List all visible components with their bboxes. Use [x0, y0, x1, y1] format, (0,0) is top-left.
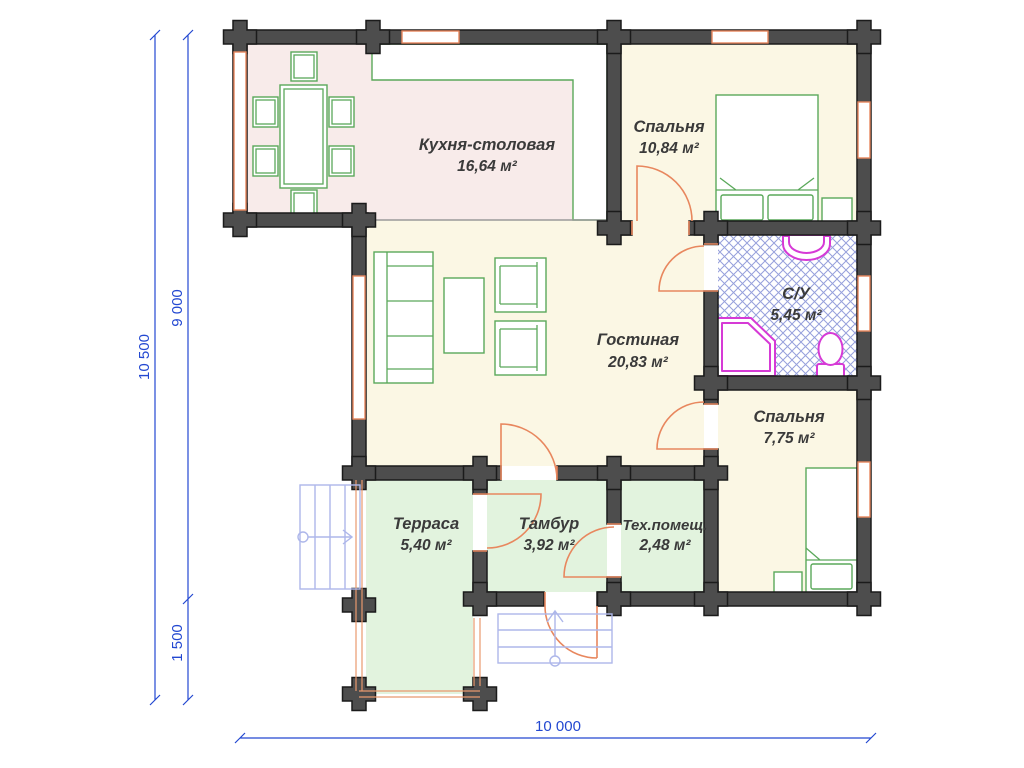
label-living-name: Гостиная [597, 331, 679, 349]
label-kitchen-dining-name: Кухня-столовая [419, 136, 555, 154]
window-bathroom-right [858, 276, 870, 331]
label-bedroom1-area: 10,84 м² [639, 140, 700, 157]
dimension-bottom-label: 10 000 [535, 718, 581, 735]
label-living-area: 20,83 м² [607, 354, 669, 371]
sofa [374, 252, 433, 383]
window-bedroom1-right [858, 102, 870, 158]
floor-plan-page: 10 500 9 000 1 500 10 000 Кухня-столовая… [0, 0, 1024, 768]
door-entrance [545, 592, 597, 658]
window-kitchen-top [402, 31, 459, 43]
label-kitchen-dining-area: 16,64 м² [457, 158, 518, 175]
armchair-2 [495, 321, 546, 375]
label-bathroom-area: 5,45 м² [770, 307, 822, 324]
coffee-table [444, 278, 484, 353]
label-bedroom2-name: Спальня [753, 408, 824, 426]
floor-plan-drawing: 10 500 9 000 1 500 10 000 Кухня-столовая… [0, 0, 1024, 768]
label-terrace-area: 5,40 м² [400, 537, 452, 554]
label-tech-room-area: 2,48 м² [638, 537, 691, 554]
window-living-left [353, 276, 365, 419]
label-terrace-name: Терраса [393, 515, 459, 533]
label-bedroom2-area: 7,75 м² [763, 430, 815, 447]
armchair-1 [495, 258, 546, 312]
window-bedroom1-top [712, 31, 768, 43]
terrace-floor [366, 480, 473, 694]
dimension-left-total-label: 10 500 [136, 334, 153, 380]
label-tech-room-name: Тех.помещ. [622, 517, 707, 534]
label-vestibule-area: 3,92 м² [523, 537, 575, 554]
window-dining-left [234, 52, 246, 210]
toilet [817, 333, 844, 377]
dimension-left-lower-label: 1 500 [169, 624, 186, 662]
label-bedroom1-name: Спальня [633, 118, 704, 136]
tech-room-floor [621, 480, 704, 592]
dimension-left-upper-label: 9 000 [169, 289, 186, 327]
window-bedroom2-right [858, 462, 870, 517]
dimension-left-split-line [183, 30, 193, 705]
vestibule-floor [487, 480, 607, 592]
stairs-left [298, 485, 360, 589]
label-bathroom-name: С/У [782, 285, 812, 303]
label-vestibule-name: Тамбур [519, 515, 580, 533]
sink [783, 236, 830, 260]
